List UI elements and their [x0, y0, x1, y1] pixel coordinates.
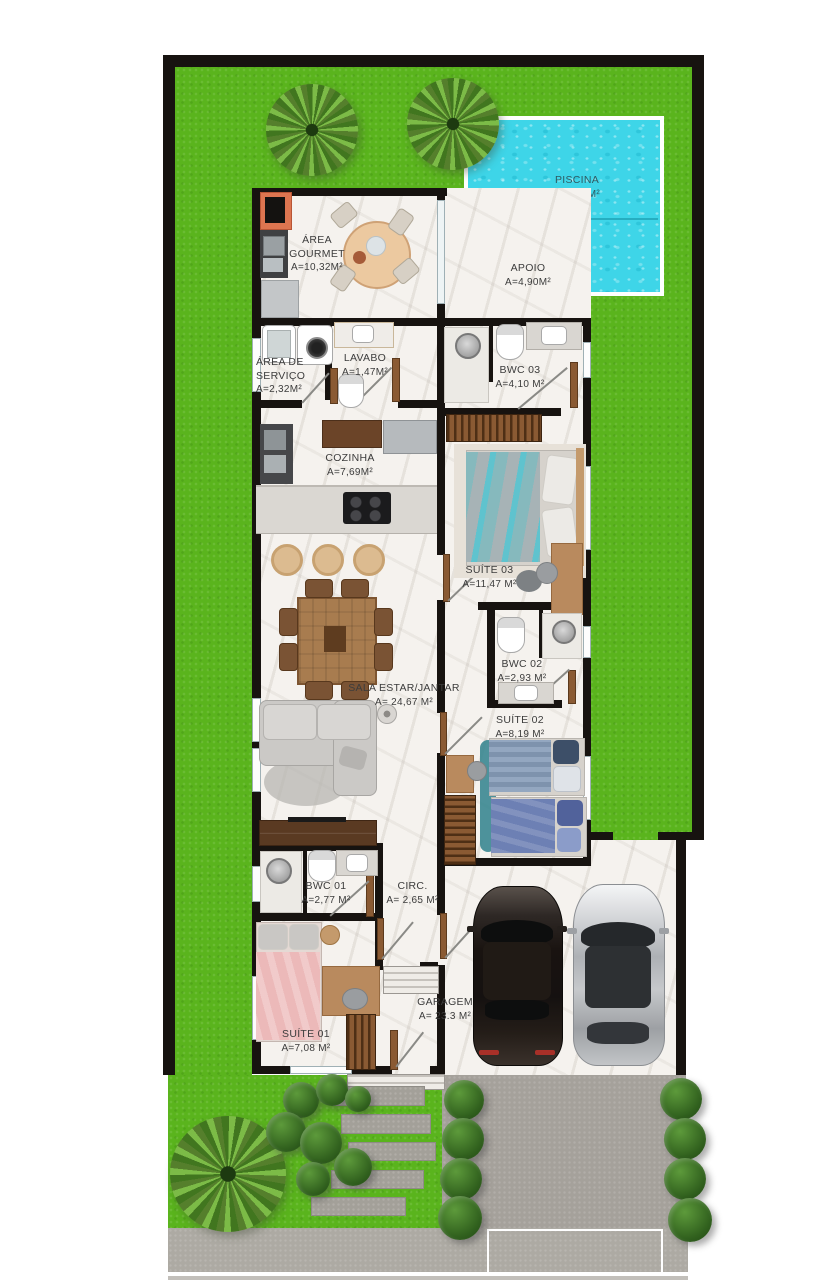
bush [334, 1148, 372, 1186]
bed-suite02-a-duvet [489, 740, 551, 792]
sofa-cushion-2 [317, 704, 371, 740]
room-area: A= 24,67 M² [330, 696, 478, 709]
dining-chair-3 [305, 681, 333, 700]
room-name: SUÍTE 02 [496, 714, 544, 726]
room-area: A=10,32M² [285, 261, 349, 274]
bush [438, 1196, 482, 1240]
palm-tree-1 [266, 84, 358, 176]
laundry-tub-basin [267, 330, 291, 358]
kitchen-steel-fridge [383, 420, 437, 454]
kitchen-upper-cabinet [322, 420, 382, 448]
room-area: A=2,93 M² [480, 672, 564, 685]
cooktop [343, 492, 391, 524]
bed-suite02-a-pillow-2 [553, 766, 581, 792]
tv-screen [288, 817, 346, 822]
car-silver-windshield [581, 922, 655, 948]
room-area: A=4,10 M² [480, 378, 560, 391]
room-name: LAVABO [344, 352, 386, 364]
dining-chair-7 [374, 608, 393, 636]
wardrobe-suite03 [446, 414, 542, 442]
door-bwc03 [570, 362, 578, 408]
room-label-cozinha: COZINHA A=7,69M² [310, 452, 390, 479]
lavabo-basin [352, 325, 374, 343]
room-name: COZINHA [325, 452, 374, 464]
bwc02-toilet [497, 617, 525, 653]
bush [660, 1078, 702, 1120]
desk-chair-suite01 [342, 988, 368, 1010]
car-silver-rear-window [587, 1022, 649, 1044]
interior-steps [383, 966, 439, 994]
room-area: A=1,47M² [320, 366, 410, 379]
room-area: A=11,47 M² [442, 578, 537, 591]
room-label-sala: SALA ESTAR/JANTAR A= 24,67 M² [330, 682, 478, 709]
dining-chair-2 [341, 579, 369, 598]
room-label-lavabo: LAVABO A=1,47M² [320, 352, 410, 379]
door-bwc02 [568, 670, 576, 704]
kitchen-microwave [264, 455, 286, 473]
driveway-apron [487, 1229, 663, 1275]
fridge [261, 280, 299, 318]
room-area: A=2,32M² [256, 383, 314, 396]
lawn-left-strip [175, 840, 252, 1075]
room-name: CIRC. [397, 880, 427, 892]
dining-chair-8 [374, 643, 393, 671]
car-dark-mirror-right [557, 926, 567, 932]
room-label-apoio: APOIO A=4,90M² [490, 262, 566, 289]
table-bowl [353, 251, 366, 264]
barbecue-grill-pit [265, 197, 285, 223]
bar-stool-1 [271, 544, 303, 576]
room-label-area-servico: ÁREA DE SERVIÇO A=2,32M² [256, 356, 314, 396]
car-silver-mirror-left [567, 928, 577, 934]
dining-chair-6 [279, 643, 298, 671]
car-dark-mirror-left [467, 926, 477, 932]
bed-suite02-b-pillow-2 [557, 828, 581, 852]
bed-suite02-b-pillow-1 [557, 800, 583, 826]
room-area: A=7,08 M² [262, 1042, 350, 1055]
glass-door-apoio [437, 200, 445, 304]
stepping-stone-2 [341, 1114, 431, 1134]
room-area: A= 2,65 M² [370, 894, 455, 907]
boundary-wall-left [163, 55, 175, 1075]
dining-chair-5 [279, 608, 298, 636]
wall-bwc01-bottom [252, 913, 383, 921]
bed-suite02-b-duvet [491, 799, 555, 853]
car-dark-rear-window [485, 1000, 549, 1020]
nightstand-suite01 [320, 925, 340, 945]
wardrobe-suite01 [346, 1014, 376, 1070]
house-wall-bottom-b [430, 1066, 445, 1074]
room-area: A= 23.3 M² [400, 1010, 490, 1023]
bwc03-basin [541, 326, 567, 345]
room-label-area-gourmet: ÁREA GOURMET A=10,32M² [285, 234, 349, 274]
room-area: A=4,90M² [490, 276, 566, 289]
room-name: SUÍTE 01 [282, 1028, 330, 1040]
room-label-suite01: SUÍTE 01 A=7,08 M² [262, 1028, 350, 1055]
bush [345, 1086, 371, 1112]
room-label-bwc02: BWC 02 A=2,93 M² [480, 658, 564, 685]
room-area: A=7,69M² [310, 466, 390, 479]
room-label-circ: CIRC. A= 2,65 M² [370, 880, 455, 907]
bush [296, 1162, 330, 1196]
kitchen-oven [264, 430, 286, 450]
room-name: BWC 02 [502, 658, 543, 670]
room-name: SALA ESTAR/JANTAR [348, 682, 460, 694]
wardrobe-suite02 [444, 795, 476, 865]
car-dark-taillight-left [479, 1050, 499, 1055]
room-name: APOIO [511, 262, 546, 274]
bwc02-basin [514, 685, 538, 701]
bar-stool-2 [312, 544, 344, 576]
car-dark-taillight-right [535, 1050, 555, 1055]
bar-stool-3 [353, 544, 385, 576]
room-area: A=8,19 M² [474, 728, 566, 741]
bed-suite02-a-pillow-1 [553, 740, 579, 764]
desk-chair-suite03 [536, 562, 558, 584]
car-silver-mirror-right [659, 928, 669, 934]
dining-chair-1 [305, 579, 333, 598]
room-name: BWC 01 [306, 880, 347, 892]
sofa-cushion-1 [263, 704, 317, 740]
stepping-stone-5 [311, 1197, 406, 1216]
dining-table-center [324, 626, 346, 652]
floor-plan: PISCINA A=9,30M² [0, 0, 823, 1280]
bush [440, 1158, 482, 1200]
wall-servico-bottom [252, 400, 302, 408]
tv-cabinet [259, 820, 377, 846]
door-circ-garage [440, 913, 447, 959]
window-bwc02 [583, 626, 591, 658]
door-suite01 [377, 918, 384, 960]
bush [664, 1158, 706, 1200]
bush [316, 1074, 348, 1106]
bush [664, 1118, 706, 1160]
palm-tree-2 [407, 78, 499, 170]
window-suite01-front [290, 1066, 352, 1074]
table-plate [366, 236, 386, 256]
boundary-wall-right [692, 55, 704, 835]
bwc01-basin [346, 854, 368, 872]
door-suite02 [440, 712, 447, 756]
lavabo-toilet [338, 374, 364, 408]
side-yard-wall-b [658, 832, 704, 840]
desk-chair-suite02 [467, 761, 487, 781]
bwc02-shower-head [552, 620, 576, 644]
car-dark-roof [483, 942, 551, 1000]
room-name: BWC 03 [500, 364, 541, 376]
garage-right-wall [676, 832, 686, 1075]
room-name: ÁREA DE SERVIÇO [256, 356, 305, 382]
bwc03-toilet [496, 324, 524, 360]
room-label-bwc01: BWC 01 A=2,77 M² [286, 880, 366, 907]
bed-suite01-duvet [256, 952, 320, 1040]
bed-suite03-pillow-1 [541, 454, 579, 506]
gourmet-sink [263, 236, 285, 256]
gourmet-prep [263, 258, 283, 272]
bed-suite01-pillow-2 [289, 924, 319, 950]
boundary-wall-top [163, 55, 704, 67]
bush [444, 1080, 484, 1120]
bed-suite03-duvet [466, 452, 540, 562]
wall-lavabo-bottom [398, 400, 437, 408]
car-dark-windshield [481, 920, 553, 944]
bed-suite01-pillow-1 [258, 924, 288, 950]
bush [442, 1118, 484, 1160]
room-name: ÁREA GOURMET [289, 234, 345, 260]
room-label-garagem: GARAGEM A= 23.3 M² [400, 996, 490, 1023]
room-name: GARAGEM [417, 996, 473, 1008]
bwc03-shower-head [455, 333, 481, 359]
room-label-bwc03: BWC 03 A=4,10 M² [480, 364, 560, 391]
bwc01-toilet [308, 850, 336, 882]
street-edge [168, 1276, 688, 1280]
room-name: PISCINA [555, 174, 599, 186]
room-area: A=2,77 M² [286, 894, 366, 907]
room-label-suite03: SUÍTE 03 A=11,47 M² [442, 564, 537, 591]
bush [668, 1198, 712, 1242]
room-label-suite02: SUÍTE 02 A=8,19 M² [474, 714, 566, 741]
room-name: SUÍTE 03 [466, 564, 514, 576]
car-silver-roof-glass [585, 946, 651, 1008]
window-bwc03 [583, 342, 591, 378]
